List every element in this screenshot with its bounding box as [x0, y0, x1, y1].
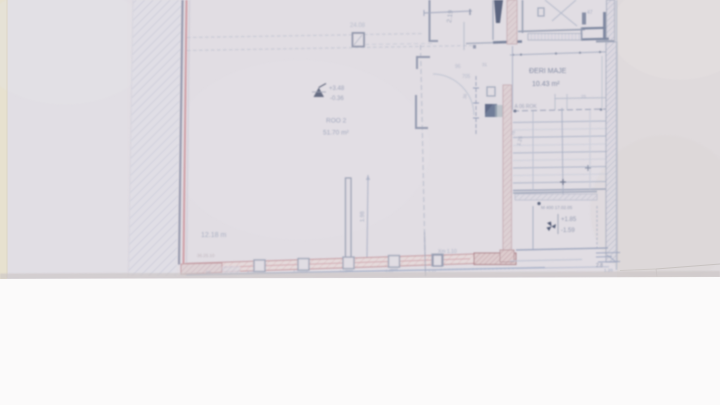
- svg-text:96: 96: [455, 64, 461, 70]
- svg-text:47: 47: [587, 10, 593, 16]
- svg-text:2.8: 2.8: [596, 263, 603, 269]
- svg-text:36.25.10: 36.25.10: [197, 253, 215, 258]
- svg-text:Xm 1.10: Xm 1.10: [438, 249, 457, 255]
- svg-text:10.43 m²: 10.43 m²: [532, 81, 560, 88]
- svg-text:12.18 m: 12.18 m: [201, 232, 226, 239]
- svg-text:-0.36: -0.36: [330, 96, 344, 102]
- svg-text:25: 25: [581, 94, 587, 99]
- svg-text:-1.59: -1.59: [561, 228, 575, 234]
- svg-text:1.98: 1.98: [360, 211, 366, 222]
- svg-text:M 400 17.02.05: M 400 17.02.05: [541, 205, 573, 210]
- svg-text:51.70 m²: 51.70 m²: [323, 130, 349, 137]
- svg-text:ROO 2: ROO 2: [326, 118, 347, 125]
- svg-text:+3.48: +3.48: [329, 86, 345, 92]
- svg-text:ĐERI MAJE: ĐERI MAJE: [529, 68, 567, 75]
- svg-text:24.08: 24.08: [350, 23, 366, 29]
- svg-text:705: 705: [462, 74, 471, 80]
- svg-text:+1.85: +1.85: [561, 217, 577, 223]
- svg-text:A 06 ROK: A 06 ROK: [515, 104, 538, 110]
- svg-text:31: 31: [482, 62, 488, 67]
